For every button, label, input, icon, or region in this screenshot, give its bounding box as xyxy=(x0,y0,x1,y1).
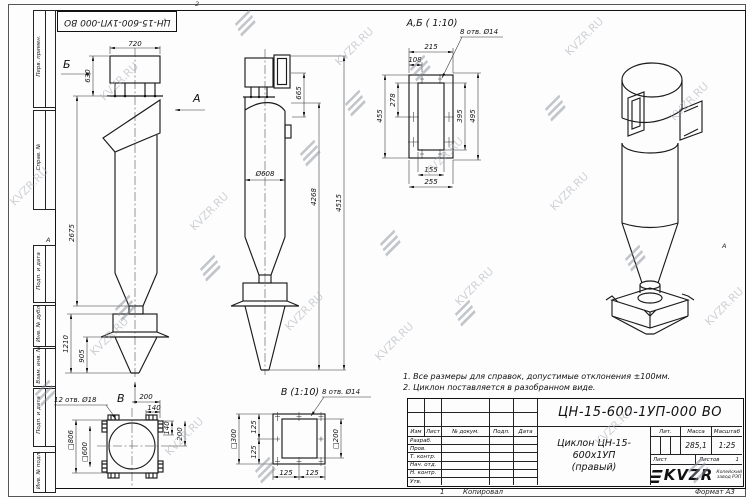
tb-row-razrab: Разраб. xyxy=(408,437,442,445)
tb-blank xyxy=(490,462,514,470)
arrow-label-a: А xyxy=(192,92,201,105)
notes: 1. Все размеры для справок, допустимые о… xyxy=(403,371,738,393)
dim-495: 495 xyxy=(469,109,477,123)
tb-blank xyxy=(442,437,490,445)
section-ab-holes xyxy=(408,74,454,159)
tb-part-name: Циклон ЦН-15-600х1УП (правый) xyxy=(538,427,651,485)
doc-number-text: ЦН-15-600-1УП-000 ВО xyxy=(558,405,722,420)
dim-outer-806: □806 xyxy=(67,429,75,450)
dim-inner-200: □200 xyxy=(332,428,340,449)
tb-blank xyxy=(490,445,514,453)
tb-blank xyxy=(425,399,442,413)
tb-blank xyxy=(514,478,538,485)
margin-box-perv-primen: Перв. примен. xyxy=(33,10,56,108)
tb-doc-number: ЦН-15-600-1УП-000 ВО xyxy=(538,399,742,427)
base-geometry xyxy=(102,415,163,478)
front-view: 720 630 2675 1210 905 А Б В xyxy=(57,38,227,410)
iso-view-geometry xyxy=(606,63,702,334)
tb-blank xyxy=(442,399,490,413)
tb-col-izm: Изм xyxy=(408,427,425,437)
tb-blank xyxy=(490,453,514,461)
tb-blank xyxy=(514,399,538,413)
tb-lit-cell-1 xyxy=(651,437,661,455)
note-line-2: 2. Циклон поставляется в разобранном вид… xyxy=(403,382,738,393)
tb-blank xyxy=(442,445,490,453)
margin-label: Перв. примен. xyxy=(36,23,42,89)
margin-label: Справ. № xyxy=(36,124,42,190)
tb-row-nkontr: Н. контр. xyxy=(408,470,442,478)
holes-label-8-otv: 8 отв. Ø14 xyxy=(460,28,498,36)
view-v: В (1:10) □300 125 125 □200 125 125 8 отв… xyxy=(230,382,380,500)
dim-905: 905 xyxy=(78,349,86,363)
tb-blank xyxy=(408,399,425,413)
section-ab-geometry xyxy=(409,75,453,158)
tb-blank xyxy=(442,470,490,478)
tb-blank xyxy=(490,478,514,485)
dim-200-top: 200 xyxy=(139,393,153,401)
title-block: Изм Лист № докум. Подп. Дата Разраб. Про… xyxy=(407,398,744,487)
holes-label-12-otv: 12 отв. Ø18 xyxy=(54,396,97,404)
dim-outer-300: □300 xyxy=(230,428,238,449)
part-name-line1: Циклон ЦН-15-600х1УП xyxy=(538,438,650,462)
dim-200-right: 200 xyxy=(176,427,184,441)
tb-row-utv: Утв. xyxy=(408,478,442,485)
tb-blank xyxy=(442,462,490,470)
zone-letter-left: А xyxy=(46,236,50,244)
footer-format: Формат А3 xyxy=(695,488,735,496)
tb-blank xyxy=(490,470,514,478)
dim-455: 455 xyxy=(376,109,384,123)
tb-col-list: Лист xyxy=(425,427,442,437)
tb-row-nachotd: Нач. отд. xyxy=(408,462,442,470)
tb-col-data: Дата xyxy=(514,427,538,437)
dim-2675: 2675 xyxy=(68,224,76,242)
tb-blank xyxy=(514,462,538,470)
dim-diameter: Ø608 xyxy=(255,170,275,178)
dim-665: 665 xyxy=(295,86,303,100)
dim-inner-600: □600 xyxy=(81,441,89,462)
tb-sheets-label: Листов xyxy=(699,457,720,463)
tb-blank xyxy=(442,453,490,461)
drawing-sheet: 2 А А Перв. примен. Справ. № Подп. и дат… xyxy=(0,0,750,500)
tb-col-doc: № докум. xyxy=(442,427,490,437)
section-ab-view: А,Б ( 1:10) 215 108 278 455 395 495 1 xyxy=(370,12,515,204)
holes-label-8-otv-v: 8 отв. Ø14 xyxy=(322,388,360,396)
tb-mass-value: 285,1 xyxy=(681,437,712,455)
dim-125-4: 125 xyxy=(305,469,319,477)
dim-1210: 1210 xyxy=(62,335,70,353)
view-v-geometry xyxy=(273,414,325,464)
tb-row-tkontr: Т. контр. xyxy=(408,453,442,461)
tb-blank xyxy=(490,413,514,427)
footer-number: 1 xyxy=(440,488,444,496)
section-ab-dim-lines xyxy=(382,37,503,187)
margin-box-sprav-n: Справ. № xyxy=(33,110,56,210)
dim-140-top: 140 xyxy=(147,404,161,412)
tb-blank xyxy=(408,413,425,427)
margin-label: Инв. № подл. xyxy=(36,437,42,500)
tb-sheets-value: 1 xyxy=(736,457,740,463)
tb-lit-cell-2 xyxy=(661,437,671,455)
dim-140-right: 140 xyxy=(163,421,171,435)
zone-number-top: 2 xyxy=(195,0,199,8)
tb-blank xyxy=(490,399,514,413)
kvzr-logo-text: KVZR xyxy=(664,466,714,484)
dim-215: 215 xyxy=(424,43,438,51)
dim-125-1: 125 xyxy=(250,420,258,434)
kvzr-logo-icon xyxy=(651,468,663,483)
tb-blank xyxy=(514,413,538,427)
view-v-dim-lines xyxy=(236,397,371,480)
dim-125-3: 125 xyxy=(279,469,293,477)
dim-4268: 4268 xyxy=(310,188,318,206)
tb-mass-label: Масса xyxy=(681,427,712,437)
tb-blank xyxy=(514,437,538,445)
top-stamp-text: ЦН-15-600-1УП-000 ВО xyxy=(64,17,171,27)
tb-blank xyxy=(490,437,514,445)
dim-108: 108 xyxy=(408,56,422,64)
dim-125-2: 125 xyxy=(250,445,258,459)
tb-lit-label: Лит. xyxy=(651,427,681,437)
dim-395: 395 xyxy=(456,109,464,123)
dim-720: 720 xyxy=(128,40,142,48)
tb-blank xyxy=(425,413,442,427)
tb-sheet-label: Лист xyxy=(651,455,696,465)
tb-col-podp: Подп. xyxy=(490,427,514,437)
section-ab-title: А,Б ( 1:10) xyxy=(406,18,458,29)
tb-blank xyxy=(514,445,538,453)
view-v-title: В (1:10) xyxy=(281,387,319,398)
dim-255: 255 xyxy=(424,178,438,186)
tb-scale-label: Масштаб xyxy=(712,427,742,437)
footer-copied: Копировал xyxy=(463,488,503,496)
dim-4515: 4515 xyxy=(335,194,343,212)
tb-scale-value: 1:25 xyxy=(712,437,742,455)
tb-sheets: Листов 1 xyxy=(696,455,742,465)
tb-logo-cell: KVZR Копейский завод РЭП xyxy=(651,465,742,485)
note-line-1: 1. Все размеры для справок, допустимые о… xyxy=(403,371,738,382)
dim-630: 630 xyxy=(84,69,92,83)
arrow-label-b: Б xyxy=(63,58,71,71)
logo-sub-line2: завод РЭП xyxy=(716,475,742,481)
side-view: Ø608 665 4268 4515 xyxy=(215,35,365,405)
dim-155: 155 xyxy=(424,166,438,174)
iso-view xyxy=(592,48,750,340)
tb-lit-cell-3 xyxy=(671,437,681,455)
tb-blank xyxy=(442,413,490,427)
base-top-view: 12 отв. Ø18 200 140 140 200 □806 □600 xyxy=(50,388,230,500)
dim-278: 278 xyxy=(389,93,397,107)
part-name-line2: (правый) xyxy=(538,462,650,474)
tb-row-prov: Пров. xyxy=(408,445,442,453)
top-stamp: ЦН-15-600-1УП-000 ВО xyxy=(57,11,177,32)
tb-blank xyxy=(514,470,538,478)
tb-blank xyxy=(514,453,538,461)
tb-blank xyxy=(442,478,490,485)
